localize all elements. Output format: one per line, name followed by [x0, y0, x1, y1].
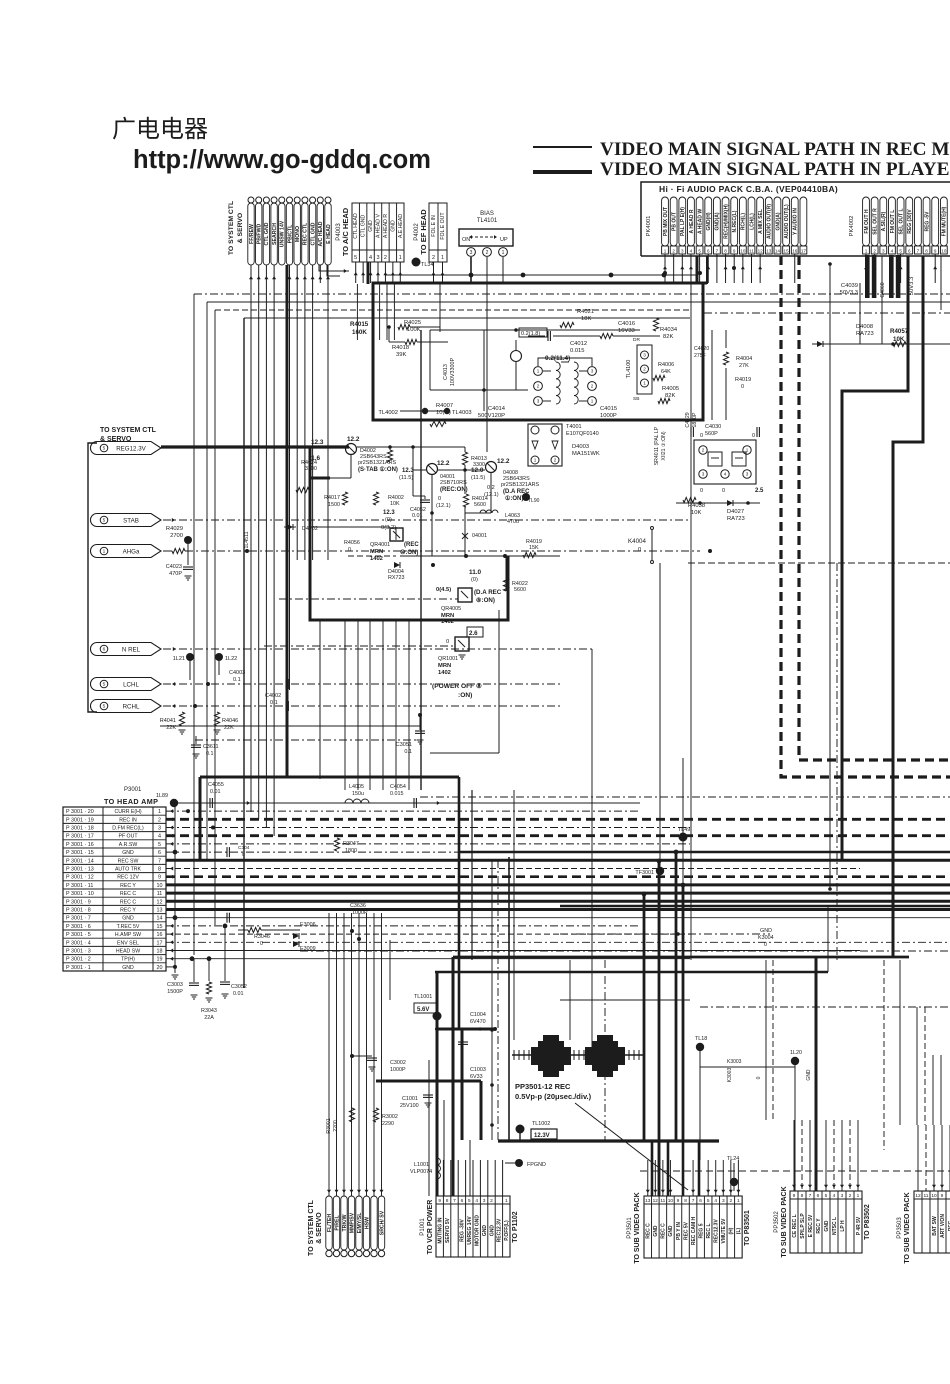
- svg-text:6: 6: [817, 1193, 820, 1199]
- svg-text:SR4011 (PAL LP: SR4011 (PAL LP: [654, 426, 660, 465]
- svg-text:& SERVO: & SERVO: [316, 1212, 323, 1244]
- svg-text:12.2: 12.2: [347, 436, 360, 443]
- svg-text:9: 9: [438, 1198, 441, 1204]
- svg-text:(11.5): (11.5): [471, 475, 485, 481]
- svg-text:2: 2: [849, 1193, 852, 1199]
- svg-text:pr2SB1321ARS: pr2SB1321ARS: [358, 460, 396, 466]
- svg-text:4: 4: [475, 1198, 478, 1204]
- svg-text:C4020: C4020: [694, 346, 709, 352]
- svg-text:GND: GND: [482, 1225, 488, 1237]
- svg-text:P3001: P3001: [124, 787, 142, 793]
- svg-text:P 3001 · 6: P 3001 · 6: [66, 924, 91, 930]
- svg-text:A.SIL(R): A.SIL(R): [881, 211, 887, 231]
- svg-text:1: 1: [502, 250, 505, 256]
- svg-text:C4039: C4039: [841, 283, 858, 289]
- svg-text:(S·TAB ①:ON): (S·TAB ①:ON): [358, 466, 398, 473]
- svg-text:11: 11: [749, 248, 754, 253]
- svg-text:SP/LP SLP: SP/LP SLP: [800, 1213, 806, 1239]
- svg-text:TL1002: TL1002: [532, 1121, 550, 1127]
- svg-text:MRN: MRN: [370, 549, 383, 555]
- svg-text:0.01: 0.01: [210, 789, 221, 795]
- svg-text:12.2: 12.2: [497, 458, 510, 465]
- svg-text:R4025: R4025: [404, 320, 421, 326]
- svg-text:P 3001 · 2: P 3001 · 2: [66, 957, 91, 963]
- svg-text:R4029: R4029: [166, 526, 183, 532]
- svg-text:(H): (H): [729, 1227, 735, 1234]
- svg-text:PP3502: PP3502: [774, 1211, 780, 1233]
- svg-text:GND: GND: [806, 1069, 812, 1081]
- svg-text:REC 5V: REC 5V: [683, 1221, 689, 1240]
- svg-text:TO SUB VIDEO PACK: TO SUB VIDEO PACK: [781, 1186, 788, 1257]
- svg-text:4: 4: [158, 834, 161, 840]
- svg-text:NTSC L: NTSC L: [832, 1217, 838, 1235]
- svg-text:0: 0: [756, 1076, 762, 1079]
- svg-text:RA723: RA723: [727, 516, 745, 522]
- svg-text:19: 19: [157, 957, 163, 963]
- svg-text:RCH(L): RCH(L): [741, 213, 747, 231]
- svg-text:C4013: C4013: [443, 364, 449, 380]
- svg-text:11.0: 11.0: [469, 569, 482, 576]
- svg-text:2: 2: [729, 1198, 732, 1204]
- svg-text:3: 3: [746, 472, 749, 477]
- svg-text:UNREG 14V: UNREG 14V: [467, 1216, 473, 1245]
- svg-text:REC(H)/MIX(H): REC(H)/MIX(H): [723, 204, 729, 239]
- svg-text:5: 5: [103, 446, 106, 452]
- svg-text:P 3001 · 3: P 3001 · 3: [66, 949, 91, 955]
- svg-text:SEL OUT R: SEL OUT R: [872, 208, 878, 235]
- svg-text:(REC: (REC: [404, 542, 419, 548]
- svg-text:FM OUT L: FM OUT L: [890, 210, 896, 234]
- svg-text:R4041: R4041: [160, 718, 176, 724]
- svg-text:P 3001 · 18: P 3001 · 18: [66, 826, 94, 832]
- svg-text:1500: 1500: [328, 502, 340, 508]
- svg-text:0: 0: [638, 547, 641, 553]
- svg-text:0: 0: [446, 639, 449, 645]
- svg-text:D4003: D4003: [572, 444, 589, 450]
- svg-text:0.01: 0.01: [233, 991, 244, 997]
- svg-text:9: 9: [158, 875, 161, 881]
- svg-text:A MIX SEL: A MIX SEL: [758, 209, 764, 234]
- svg-text:470u: 470u: [507, 519, 519, 525]
- svg-text:REC Y: REC Y: [120, 883, 136, 889]
- svg-text:GND: GND: [122, 850, 134, 856]
- svg-text:⑧:ON): ⑧:ON): [476, 597, 495, 604]
- svg-text:2.6: 2.6: [469, 630, 478, 637]
- svg-text:3: 3: [882, 248, 885, 253]
- svg-text:17: 17: [157, 940, 163, 946]
- svg-text:A/C HEAD: A/C HEAD: [318, 221, 324, 246]
- svg-text:1L4511: 1L4511: [244, 531, 250, 548]
- svg-text:7: 7: [158, 858, 161, 864]
- svg-text:P 3001 · 9: P 3001 · 9: [66, 899, 91, 905]
- svg-text:5.6V: 5.6V: [417, 1007, 429, 1013]
- svg-text:C4014: C4014: [488, 406, 506, 412]
- svg-text:L1001: L1001: [414, 1162, 429, 1168]
- svg-text:TL18: TL18: [695, 1036, 707, 1042]
- svg-text:R4021: R4021: [577, 309, 594, 315]
- svg-text:2: 2: [432, 255, 435, 261]
- svg-text:K3004: K3004: [758, 935, 774, 941]
- svg-text:10: 10: [941, 248, 947, 253]
- svg-text:12: 12: [758, 248, 764, 253]
- svg-text:2.5: 2.5: [755, 488, 764, 494]
- svg-text:REG12.3V: REG12.3V: [116, 445, 146, 452]
- svg-text:R3047: R3047: [343, 841, 359, 847]
- svg-text:6V33: 6V33: [470, 1074, 483, 1080]
- svg-text:pr2SB1321ARS: pr2SB1321ARS: [501, 482, 539, 488]
- svg-text:1402: 1402: [370, 556, 383, 562]
- svg-text:N.REC(L): N.REC(L): [732, 210, 738, 232]
- svg-text:5: 5: [103, 704, 106, 710]
- svg-text:4: 4: [724, 472, 727, 477]
- svg-text:PB/CTL: PB/CTL: [287, 224, 293, 244]
- svg-text:GND: GND: [122, 916, 134, 922]
- svg-text:1: 1: [399, 255, 402, 261]
- svg-text:C3636: C3636: [350, 903, 366, 909]
- svg-text:0: 0: [260, 941, 263, 947]
- svg-text:LCHL: LCHL: [123, 681, 139, 688]
- svg-text:10: 10: [157, 883, 163, 889]
- svg-text:⑩:ON): ⑩:ON): [400, 549, 418, 556]
- svg-text:R4019: R4019: [735, 377, 751, 383]
- svg-text:1000P: 1000P: [600, 413, 617, 419]
- svg-text:GND: GND: [653, 1225, 659, 1237]
- svg-text:P 3001 · 1: P 3001 · 1: [66, 965, 91, 971]
- svg-text:AUDIO OUT(L): AUDIO OUT(L): [784, 204, 790, 239]
- svg-text:P 3001 · 19: P 3001 · 19: [66, 817, 94, 823]
- svg-text:C4015: C4015: [600, 406, 617, 412]
- svg-text:1L89: 1L89: [156, 793, 168, 799]
- svg-text:C3611: C3611: [203, 744, 218, 750]
- svg-text:13: 13: [766, 248, 772, 253]
- svg-text:MUTING IN: MUTING IN: [438, 1217, 444, 1243]
- svg-text:REC SW: REC SW: [118, 858, 139, 864]
- svg-text:3: 3: [483, 1198, 486, 1204]
- svg-text:(0): (0): [471, 577, 478, 583]
- svg-text:8: 8: [158, 867, 161, 873]
- svg-text:17: 17: [801, 248, 807, 253]
- svg-text:0.1: 0.1: [233, 677, 241, 683]
- svg-text:14: 14: [157, 916, 163, 922]
- svg-text:PF OUT: PF OUT: [118, 834, 138, 840]
- svg-text:R3002: R3002: [382, 1114, 398, 1120]
- svg-text:R3043: R3043: [201, 1008, 217, 1014]
- svg-text:VIDEO MAIN SIGNAL PATH IN REC: VIDEO MAIN SIGNAL PATH IN REC M: [600, 139, 950, 160]
- svg-text:TRK/W: TRK/W: [342, 1214, 348, 1231]
- svg-text:0.5Vp-p (20μsec./div.): 0.5Vp-p (20μsec./div.): [515, 1092, 592, 1101]
- svg-text:04001: 04001: [472, 533, 487, 539]
- svg-text:AUTO TRK: AUTO TRK: [115, 867, 142, 873]
- svg-text:A HEAD R: A HEAD R: [689, 209, 695, 233]
- svg-text:39K: 39K: [396, 352, 406, 358]
- svg-text:PP3503: PP3503: [897, 1217, 903, 1239]
- svg-text:TL1001: TL1001: [414, 994, 432, 1000]
- svg-text:PP3501-12 REC: PP3501-12 REC: [515, 1082, 571, 1091]
- svg-text:6V470: 6V470: [470, 1019, 486, 1025]
- svg-text:1: 1: [591, 399, 594, 404]
- svg-text:5: 5: [354, 255, 357, 261]
- svg-text:P 3001 · 5: P 3001 · 5: [66, 932, 91, 938]
- svg-text:2: 2: [486, 250, 489, 256]
- svg-text:1500P: 1500P: [167, 989, 183, 995]
- svg-text:TO SUB VIDEO PACK: TO SUB VIDEO PACK: [634, 1192, 641, 1263]
- svg-text:15: 15: [784, 248, 790, 253]
- svg-text:P 3001 · 4: P 3001 · 4: [66, 940, 91, 946]
- svg-text:AUDIO OUT(R): AUDIO OUT(R): [767, 204, 773, 239]
- svg-text:ENV SEL: ENV SEL: [117, 940, 139, 946]
- svg-text:11: 11: [660, 1198, 665, 1204]
- svg-text:RX723: RX723: [388, 575, 404, 581]
- svg-text:14: 14: [775, 248, 781, 253]
- svg-text:4: 4: [714, 1198, 717, 1204]
- svg-text:7: 7: [917, 248, 920, 253]
- svg-text:P 3001 · 17: P 3001 · 17: [66, 834, 94, 840]
- svg-text:C4055: C4055: [208, 782, 224, 788]
- svg-text:0.01: 0.01: [412, 513, 423, 519]
- svg-text:1: 1: [865, 248, 868, 253]
- svg-text:QR4005: QR4005: [441, 606, 461, 612]
- svg-text:REC CAM H: REC CAM H: [691, 1216, 697, 1245]
- svg-text:PAL LP E(H): PAL LP E(H): [680, 207, 686, 236]
- svg-text:6: 6: [699, 1198, 702, 1204]
- svg-text:R4056: R4056: [344, 540, 360, 546]
- svg-text:6: 6: [908, 248, 911, 253]
- svg-text:C3003: C3003: [167, 982, 183, 988]
- svg-text:6: 6: [158, 850, 161, 856]
- svg-text:E107QF0140: E107QF0140: [566, 431, 599, 437]
- svg-text:3: 3: [681, 248, 684, 253]
- svg-text:C4003: C4003: [229, 670, 245, 676]
- svg-text:C3051: C3051: [396, 742, 412, 748]
- svg-text:1402: 1402: [438, 670, 451, 676]
- svg-text:1: 1: [158, 809, 161, 815]
- svg-text:FOL E IN: FOL E IN: [431, 215, 437, 237]
- svg-text:PK4001: PK4001: [646, 216, 652, 237]
- svg-text:0: 0: [242, 852, 245, 858]
- svg-text:2: 2: [537, 384, 540, 389]
- svg-text:TO P83502: TO P83502: [864, 1204, 871, 1240]
- svg-text:(0): (0): [385, 517, 392, 523]
- svg-text:TL4100: TL4100: [626, 360, 632, 379]
- svg-text:P 3001 · 16: P 3001 · 16: [66, 842, 94, 848]
- svg-text:TO SYSTEM CTL: TO SYSTEM CTL: [100, 427, 157, 434]
- svg-text:7: 7: [692, 1198, 695, 1204]
- svg-text:16: 16: [157, 932, 163, 938]
- svg-text:2200: 2200: [333, 1120, 339, 1132]
- svg-text:P1001: P1001: [420, 1218, 426, 1236]
- svg-text:STAB: STAB: [123, 517, 139, 524]
- svg-text:15: 15: [157, 924, 163, 930]
- svg-text:160K: 160K: [352, 329, 367, 336]
- svg-text:82K: 82K: [663, 334, 673, 340]
- svg-text:FM MUTE(H): FM MUTE(H): [942, 206, 948, 236]
- svg-text:XII21 ①:ON): XII21 ①:ON): [661, 431, 667, 460]
- svg-text:SB: SB: [633, 396, 639, 402]
- svg-text:15K: 15K: [529, 545, 539, 551]
- svg-text:GND: GND: [668, 1225, 674, 1237]
- svg-text:0.2(11.4): 0.2(11.4): [545, 355, 570, 362]
- svg-text:C1001: C1001: [402, 1096, 418, 1102]
- svg-text:0: 0: [722, 488, 725, 494]
- svg-text:5: 5: [707, 1198, 710, 1204]
- svg-text:2290: 2290: [382, 1121, 394, 1127]
- svg-text:1L22: 1L22: [225, 656, 237, 662]
- svg-text:PP3501: PP3501: [627, 1217, 633, 1239]
- svg-text:C4060: C4060: [880, 282, 886, 297]
- svg-text:16V33: 16V33: [618, 328, 635, 334]
- svg-text:5: 5: [103, 682, 106, 688]
- svg-text:2: 2: [591, 384, 594, 389]
- svg-text:8: 8: [724, 248, 727, 253]
- svg-text:REC IN: REC IN: [119, 817, 137, 823]
- svg-text:TL90: TL90: [528, 498, 540, 504]
- svg-text:470P: 470P: [169, 571, 182, 577]
- svg-text:13: 13: [645, 1198, 651, 1204]
- svg-text:GND: GND: [489, 1225, 495, 1237]
- svg-text:REC C: REC C: [646, 1223, 652, 1239]
- svg-text:8: 8: [446, 1198, 449, 1204]
- svg-text:8: 8: [925, 248, 928, 253]
- svg-text:QR1001: QR1001: [438, 656, 458, 662]
- svg-text:16: 16: [792, 248, 798, 253]
- svg-text:5: 5: [468, 1198, 471, 1204]
- svg-text:BIAS: BIAS: [480, 211, 494, 217]
- svg-text:R4034: R4034: [660, 327, 678, 333]
- svg-text:R4017: R4017: [324, 495, 340, 501]
- svg-text:MA151WK: MA151WK: [572, 451, 600, 457]
- svg-text:TO EF HEAD: TO EF HEAD: [419, 209, 428, 255]
- svg-text:TF3001: TF3001: [635, 870, 654, 876]
- svg-text:REC12.3V: REC12.3V: [714, 1219, 720, 1243]
- svg-text:FOL E OUT: FOL E OUT: [440, 212, 446, 240]
- svg-text:C4016: C4016: [618, 321, 635, 327]
- svg-text:K3003: K3003: [727, 1059, 742, 1065]
- svg-text:P.OFF(L): P.OFF(L): [504, 1220, 510, 1241]
- svg-text:CTL HEAD: CTL HEAD: [353, 213, 359, 239]
- svg-text:1: 1: [664, 248, 667, 253]
- svg-text:TP(H): TP(H): [121, 957, 135, 963]
- svg-text:P 3001 · 14: P 3001 · 14: [66, 858, 94, 864]
- svg-text:500V120P: 500V120P: [478, 413, 505, 419]
- svg-text:http://www.go-gddq.com: http://www.go-gddq.com: [133, 146, 431, 174]
- svg-text:R4007: R4007: [436, 403, 453, 409]
- svg-text:7: 7: [716, 248, 719, 253]
- svg-text:P 3001 · 15: P 3001 · 15: [66, 850, 94, 856]
- svg-text:1000P: 1000P: [352, 910, 368, 916]
- svg-text:0: 0: [700, 488, 703, 494]
- svg-text:①:ON): ①:ON): [505, 495, 523, 502]
- svg-text:TL24: TL24: [727, 1156, 739, 1162]
- svg-text:C3002: C3002: [390, 1060, 406, 1066]
- svg-text:A.E.HEAD: A.E.HEAD: [398, 214, 404, 238]
- svg-text:P 3001 · 11: P 3001 · 11: [66, 883, 93, 889]
- svg-text:3: 3: [158, 826, 161, 832]
- svg-text:HSW: HSW: [364, 1217, 370, 1229]
- svg-text:50V3.3: 50V3.3: [840, 290, 858, 296]
- svg-text:(REC:ON): (REC:ON): [440, 487, 468, 493]
- svg-text:1: 1: [643, 381, 646, 386]
- svg-text:10K: 10K: [893, 336, 905, 343]
- svg-text:FM OUT H: FM OUT H: [864, 209, 870, 234]
- svg-text:3: 3: [702, 472, 705, 477]
- svg-text:3: 3: [643, 353, 646, 358]
- svg-text:P 3001 · 20: P 3001 · 20: [66, 809, 94, 815]
- svg-text:6: 6: [103, 647, 106, 653]
- svg-text:11: 11: [924, 1193, 929, 1199]
- svg-text:1: 1: [737, 1198, 740, 1204]
- svg-text:12.3V: 12.3V: [534, 1133, 550, 1139]
- svg-text:GND: GND: [390, 220, 396, 232]
- svg-text:E HEAD: E HEAD: [326, 224, 332, 244]
- svg-text:REC L: REC L: [706, 1224, 712, 1239]
- svg-text:0: 0: [700, 433, 703, 439]
- svg-text:10: 10: [931, 1193, 937, 1199]
- svg-text:150u: 150u: [352, 791, 364, 797]
- svg-text:LP H: LP H: [840, 1220, 846, 1232]
- svg-text:1: 1: [441, 255, 444, 261]
- svg-text:1: 1: [857, 1193, 860, 1199]
- svg-text:RCHL: RCHL: [123, 703, 140, 710]
- svg-text:0: 0: [764, 942, 767, 948]
- svg-text:D.FM REC(L): D.FM REC(L): [112, 826, 144, 832]
- svg-text:REG -30V: REG -30V: [460, 1218, 466, 1241]
- svg-text:1: 1: [505, 1198, 508, 1204]
- svg-text:C4030: C4030: [705, 424, 721, 430]
- svg-text:REG (30)V: REG (30)V: [907, 209, 913, 234]
- svg-text:PB/FWD: PB/FWD: [257, 224, 263, 245]
- svg-text:10K: 10K: [691, 510, 701, 516]
- svg-text:3: 3: [376, 255, 379, 261]
- svg-text:HEAD SW: HEAD SW: [116, 949, 140, 955]
- svg-text:1: 1: [534, 458, 537, 463]
- svg-text:PK4002: PK4002: [849, 216, 855, 237]
- svg-text:9: 9: [677, 1198, 680, 1204]
- svg-text:12.3: 12.3: [311, 439, 324, 446]
- svg-text:K3003: K3003: [727, 1068, 733, 1083]
- svg-text:SEL OUT L: SEL OUT L: [898, 208, 904, 234]
- svg-text:C1003: C1003: [470, 1067, 486, 1073]
- svg-text:R3046: R3046: [254, 934, 270, 940]
- svg-text:1: 1: [103, 549, 106, 555]
- svg-text:GND: GND: [368, 220, 374, 232]
- svg-text:A.R.SW: A.R.SW: [119, 842, 138, 848]
- svg-text:1L20: 1L20: [790, 1050, 802, 1056]
- svg-text:27K: 27K: [739, 363, 749, 369]
- svg-text:1000P: 1000P: [390, 1067, 406, 1073]
- svg-text:PB OUT: PB OUT: [671, 212, 677, 231]
- svg-text:K4004: K4004: [628, 538, 646, 545]
- svg-text::ON): :ON): [458, 692, 472, 699]
- svg-text:P 3001 · 13: P 3001 · 13: [66, 867, 94, 873]
- svg-text:TL4003: TL4003: [452, 410, 472, 416]
- svg-text:REG 5: REG 5: [698, 1223, 704, 1238]
- svg-text:SRCH/ SV: SRCH/ SV: [379, 1210, 385, 1235]
- svg-text:7: 7: [809, 1193, 812, 1199]
- svg-text:E3006: E3006: [300, 922, 316, 928]
- svg-text:3: 3: [722, 1198, 725, 1204]
- svg-text:2: 2: [643, 367, 646, 372]
- svg-text:MMP/SV: MMP/SV: [349, 1212, 355, 1233]
- svg-text:TO SYSTEM CTL: TO SYSTEM CTL: [228, 201, 235, 255]
- svg-text:GND(H): GND(H): [706, 212, 712, 230]
- svg-text:Hi · Fi AUDIO PACK C.B.A.: Hi · Fi AUDIO PACK C.B.A. (VEP04410BA): [659, 184, 838, 194]
- svg-text:CE REC L: CE REC L: [792, 1214, 798, 1237]
- svg-text:PB Y IN: PB Y IN: [676, 1222, 682, 1240]
- svg-text:FL/TEH: FL/TEH: [327, 1214, 333, 1232]
- svg-text:2: 2: [873, 248, 876, 253]
- svg-text:AHGa: AHGa: [123, 548, 140, 555]
- svg-text:1L21: 1L21: [173, 656, 185, 662]
